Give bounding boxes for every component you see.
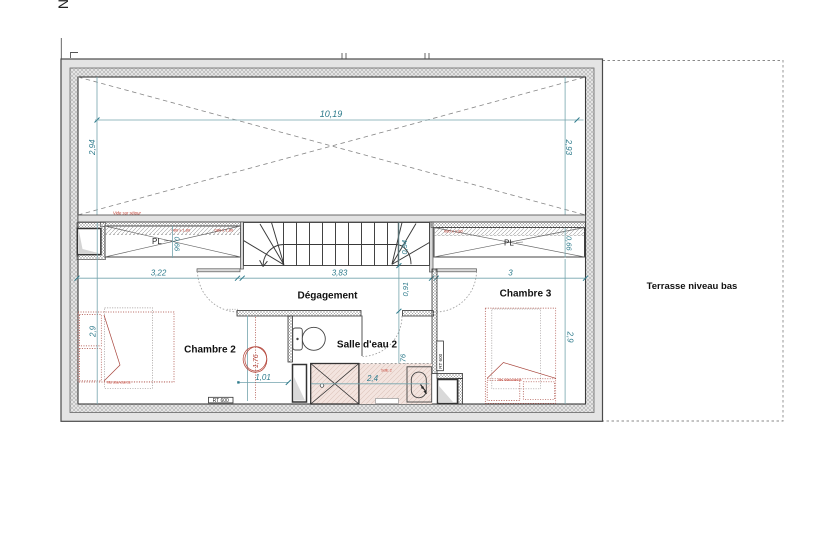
svg-text:N: N [56, 0, 72, 9]
svg-text:lits standards: lits standards [498, 377, 522, 382]
svg-text:Salle d'eau 2: Salle d'eau 2 [337, 340, 398, 351]
svg-text:3,83: 3,83 [332, 269, 348, 278]
svg-text:1,01: 1,01 [255, 373, 271, 382]
svg-text:1,76: 1,76 [253, 354, 260, 368]
svg-text:lits standards: lits standards [107, 380, 131, 385]
svg-text:Chambre 2: Chambre 2 [184, 345, 236, 356]
svg-text:2,9: 2,9 [89, 325, 98, 338]
svg-text:Terrasse niveau bas: Terrasse niveau bas [647, 281, 738, 292]
svg-text:0,91: 0,91 [401, 282, 410, 297]
svg-text:080 x 1,80: 080 x 1,80 [444, 229, 463, 234]
svg-text:Dégagement: Dégagement [297, 291, 358, 302]
svg-text:PL: PL [152, 237, 162, 246]
svg-text:PL: PL [504, 239, 514, 248]
svg-text:0,66: 0,66 [565, 236, 574, 251]
svg-text:3,22: 3,22 [151, 269, 167, 278]
svg-text:0,94: 0,94 [400, 240, 409, 255]
svg-text:080 x 1,80: 080 x 1,80 [172, 228, 191, 233]
svg-text:2,9: 2,9 [566, 331, 575, 344]
svg-text:Chambre 3: Chambre 3 [500, 289, 552, 300]
svg-text:SdE 2: SdE 2 [381, 368, 393, 373]
svg-text:3: 3 [508, 269, 513, 278]
svg-text:2,94: 2,94 [88, 139, 97, 156]
svg-text:RT 600: RT 600 [438, 353, 443, 368]
svg-text:080 x 1,80: 080 x 1,80 [215, 228, 234, 233]
svg-text:RT 600: RT 600 [213, 398, 229, 404]
svg-text:2,4: 2,4 [366, 374, 379, 383]
svg-text:0,66: 0,66 [173, 237, 182, 252]
svg-text:10,19: 10,19 [320, 109, 343, 119]
svg-text:2,93: 2,93 [564, 139, 573, 156]
